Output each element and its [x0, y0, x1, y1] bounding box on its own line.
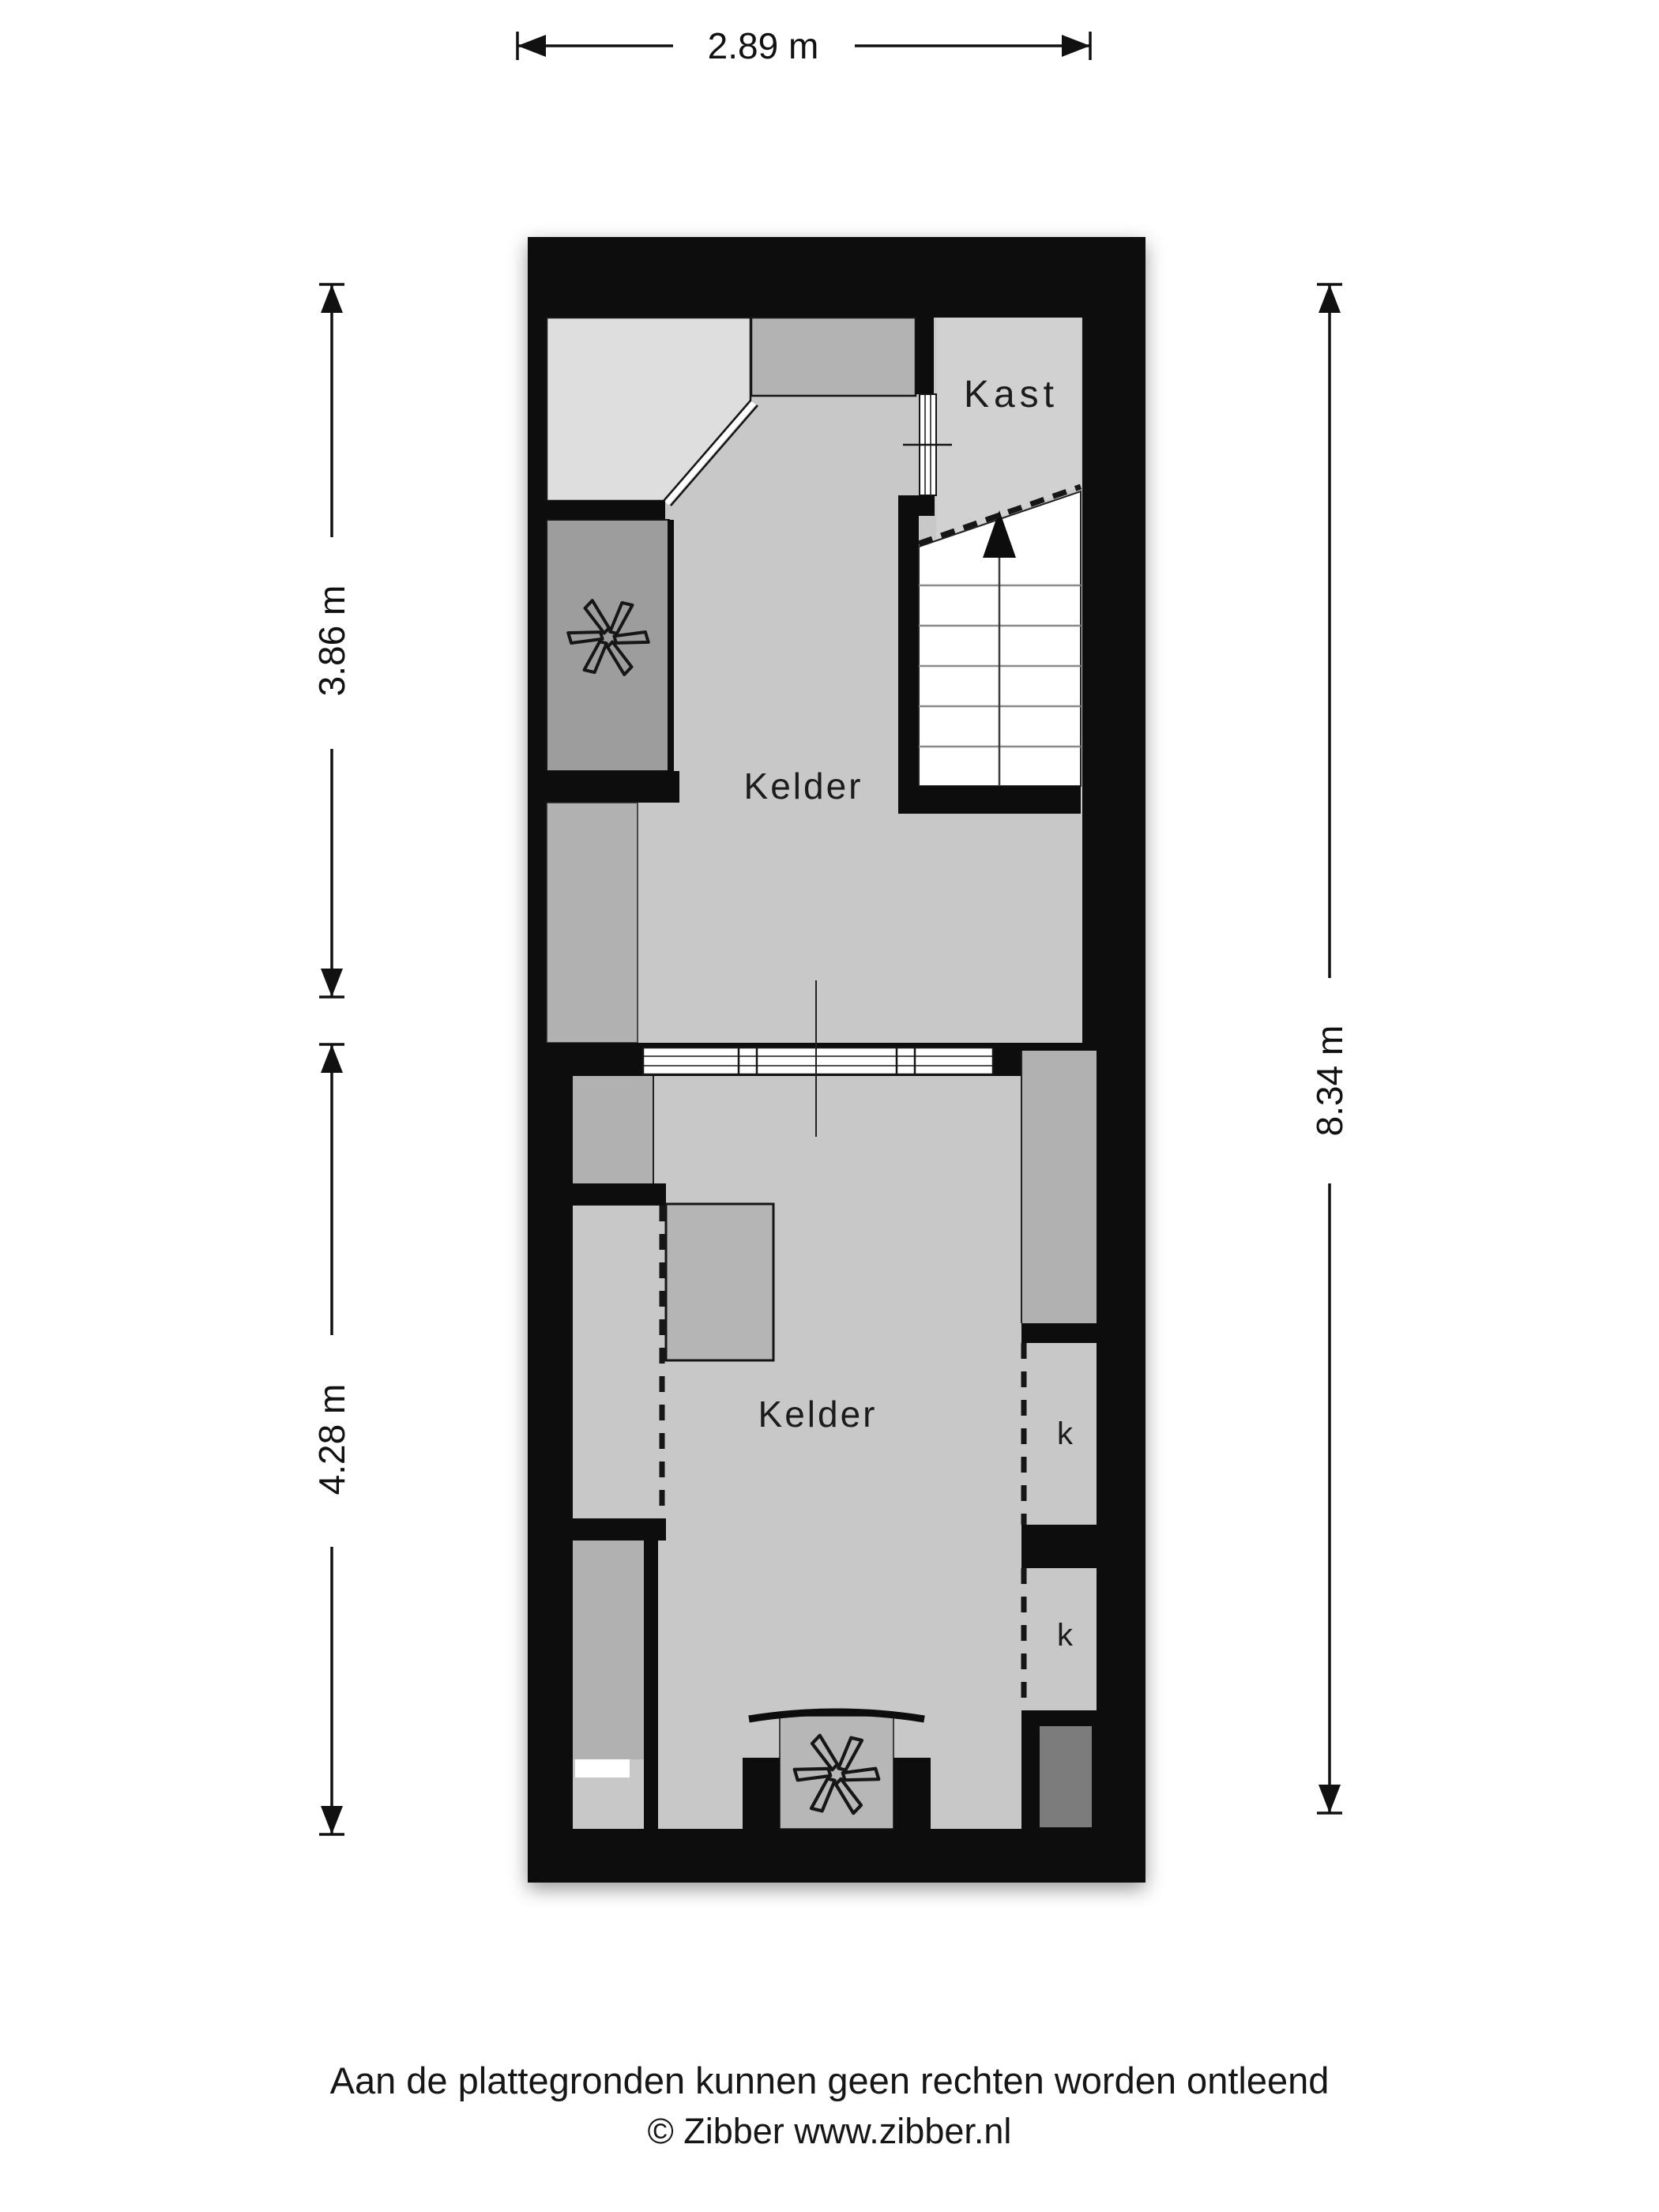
wall-segment	[644, 1540, 658, 1829]
window-frame	[643, 1048, 993, 1074]
wall-segment	[573, 1518, 666, 1540]
wall-segment	[1021, 1525, 1097, 1568]
left-side-strip	[573, 1076, 653, 1183]
wall-segment	[573, 1183, 666, 1206]
stair-left-wall	[898, 513, 919, 814]
floorplan: Kelder Kast Kelder k k	[528, 237, 1145, 1883]
footer-disclaimer: Aan de plattegronden kunnen geen rechten…	[0, 2059, 1659, 2102]
floorplan-page: Kelder Kast Kelder k k 2.89 m 3.86 m 4.2…	[0, 0, 1659, 2212]
dimension-top: 2.89 m	[517, 25, 1090, 66]
top-center-room-floor	[751, 318, 916, 396]
closet-label-2: k	[1057, 1618, 1074, 1653]
wall-segment	[743, 1758, 780, 1829]
room-label-kelder-lower: Kelder	[758, 1394, 878, 1435]
stair-bottom-wall	[898, 786, 1081, 814]
vent-slot	[575, 1759, 630, 1777]
wall-segment	[668, 520, 674, 771]
room-label-kelder-upper: Kelder	[744, 766, 863, 807]
left-side-strip	[547, 803, 638, 1043]
dimension-label-right: 8.34 m	[1309, 1025, 1350, 1137]
wall-segment	[528, 1043, 643, 1076]
wall-segment	[893, 1758, 931, 1829]
dimension-right: 8.34 m	[1309, 284, 1350, 1813]
dimension-label-left-lower: 4.28 m	[311, 1384, 352, 1495]
dimension-label-left-upper: 3.86 m	[311, 585, 352, 697]
wall-segment	[1021, 1323, 1097, 1343]
room-label-kast: Kast	[964, 374, 1059, 416]
wall-segment	[898, 495, 935, 516]
dimension-left-lower: 4.28 m	[311, 1044, 352, 1834]
footer-copyright: © Zibber www.zibber.nl	[0, 2111, 1659, 2152]
left-side-strip	[573, 1540, 644, 1759]
floorplan-canvas: Kelder Kast Kelder k k 2.89 m 3.86 m 4.2…	[0, 0, 1659, 2212]
dimension-left-upper: 3.86 m	[311, 284, 352, 997]
closet-label-1: k	[1057, 1416, 1074, 1451]
wall-niche-dark	[1040, 1726, 1092, 1827]
wall-segment	[528, 771, 679, 803]
dimension-label-top: 2.89 m	[708, 25, 819, 66]
wall-niche	[575, 1780, 628, 1829]
wall-segment	[528, 501, 665, 520]
right-side-strip	[1021, 1051, 1097, 1323]
wall-segment	[916, 318, 934, 394]
object-block	[666, 1204, 773, 1360]
